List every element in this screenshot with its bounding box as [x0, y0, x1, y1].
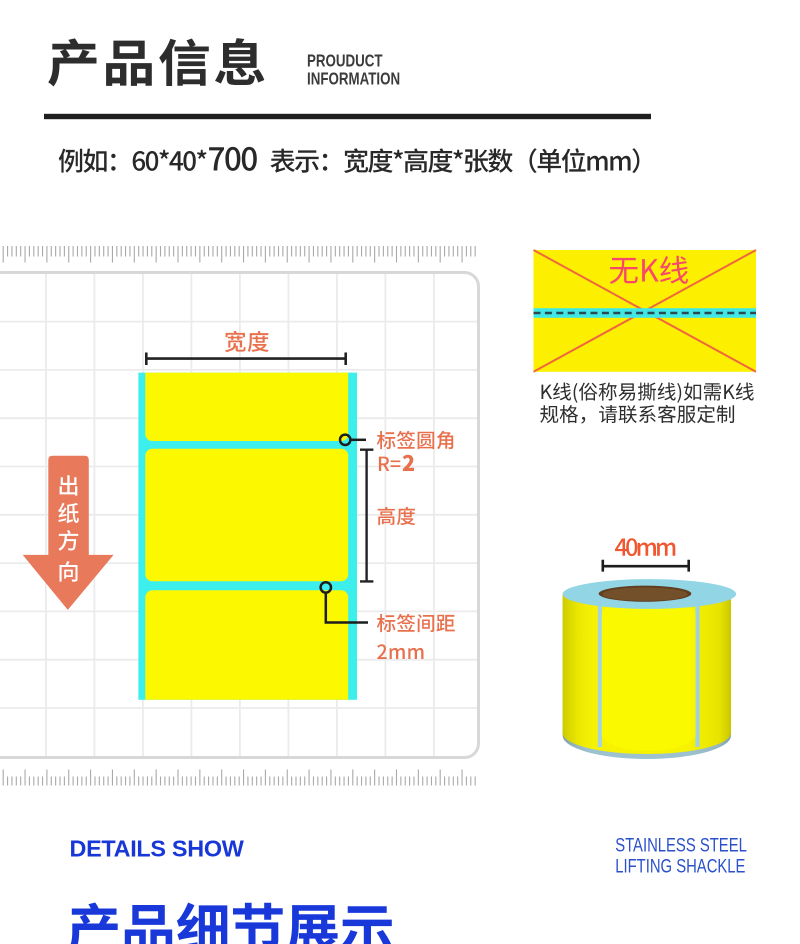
svg-text:INFORMATION: INFORMATION	[307, 70, 400, 89]
svg-text:STAINLESS STEEL: STAINLESS STEEL	[615, 834, 747, 856]
svg-text:DETAILS SHOW: DETAILS SHOW	[70, 836, 245, 862]
svg-text:PROUDUCT: PROUDUCT	[307, 52, 383, 71]
svg-text:LIFTING SHACKLE: LIFTING SHACKLE	[615, 854, 745, 876]
